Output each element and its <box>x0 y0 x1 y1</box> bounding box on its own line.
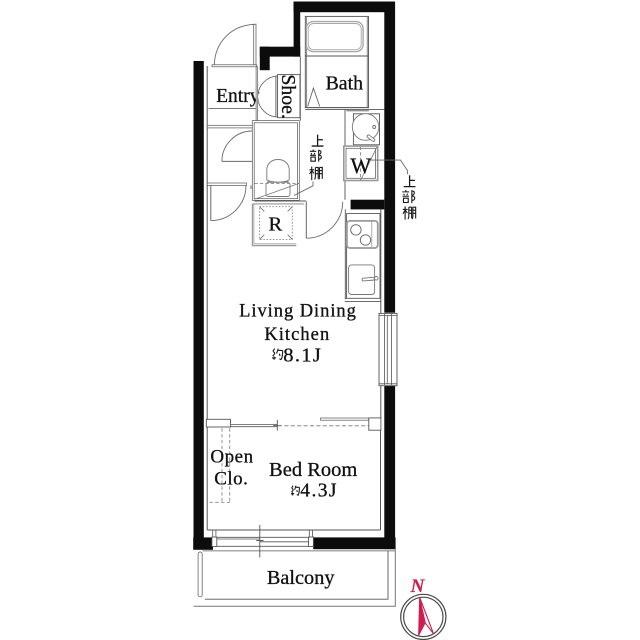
svg-text:Shoe.: Shoe. <box>277 74 299 119</box>
svg-text:N: N <box>410 576 426 597</box>
svg-text:Bed Room: Bed Room <box>269 459 357 481</box>
svg-text:8.1J: 8.1J <box>283 345 322 367</box>
svg-text:4.3J: 4.3J <box>300 481 338 502</box>
svg-text:Living Dining: Living Dining <box>239 302 357 322</box>
svg-text:Kitchen: Kitchen <box>264 325 330 345</box>
svg-text:Clo.: Clo. <box>214 468 248 489</box>
svg-text:Balcony: Balcony <box>267 567 335 589</box>
svg-text:W: W <box>350 153 371 178</box>
svg-text:R: R <box>268 213 282 235</box>
svg-text:Entry: Entry <box>216 86 260 107</box>
svg-text:Bath: Bath <box>326 73 363 95</box>
svg-text:Open: Open <box>210 447 253 468</box>
